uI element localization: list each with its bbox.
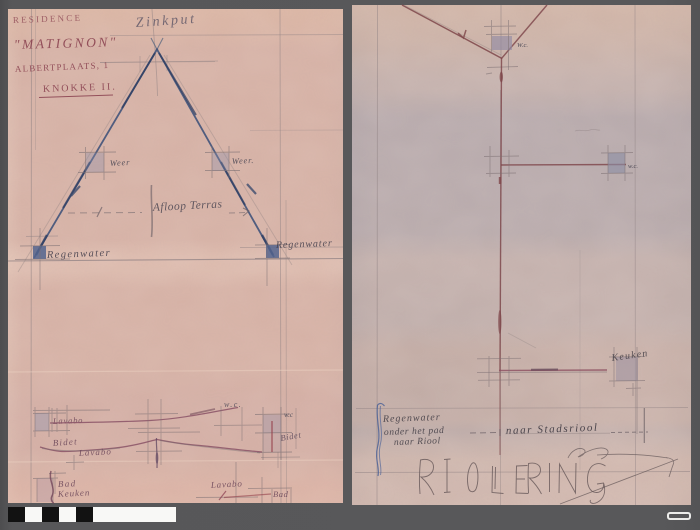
svg-text:"MATIGNON": "MATIGNON" [14,34,118,52]
svg-text:W.c.: W.c. [517,42,528,49]
svg-text:naar Riool: naar Riool [394,436,441,448]
svg-text:Bidet: Bidet [52,436,78,448]
svg-text:Lavabo: Lavabo [210,478,243,490]
svg-text:w.c.: w.c. [628,163,638,170]
svg-text:Weer.: Weer. [232,155,255,166]
svg-text:w.c: w.c [284,411,294,419]
svg-text:Regenwater: Regenwater [46,248,112,261]
svg-text:w.c.: w.c. [224,400,242,409]
svg-text:Lavabo: Lavabo [52,415,84,426]
svg-text:Lavabo: Lavabo [78,446,112,458]
svg-text:Keuken: Keuken [57,487,91,499]
svg-text:Bad: Bad [273,489,289,499]
svg-text:Regenwater: Regenwater [382,412,441,425]
svg-text:Weer: Weer [110,157,131,168]
svg-text:Regenwater: Regenwater [275,238,333,251]
